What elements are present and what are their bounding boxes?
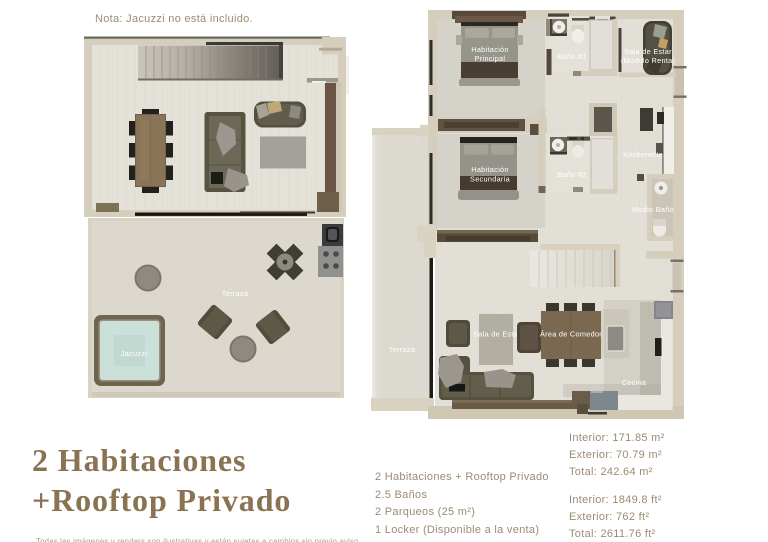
svg-text:Terraza: Terraza bbox=[389, 345, 416, 354]
svg-text:Habitación: Habitación bbox=[471, 45, 508, 54]
svg-text:Secundaria: Secundaria bbox=[470, 175, 511, 184]
svg-text:Kitchenette: Kitchenette bbox=[623, 150, 663, 159]
svg-text:(Módulo Renta): (Módulo Renta) bbox=[621, 56, 676, 65]
svg-text:Cocina: Cocina bbox=[622, 378, 647, 387]
svg-text:Habitación: Habitación bbox=[471, 165, 508, 174]
svg-text:Baño #2: Baño #2 bbox=[557, 170, 586, 179]
svg-text:Área de Comedor: Área de Comedor bbox=[540, 330, 602, 339]
svg-text:Baño #1: Baño #1 bbox=[557, 52, 586, 61]
svg-text:Principal: Principal bbox=[475, 54, 506, 63]
svg-text:Sala de Estar: Sala de Estar bbox=[624, 47, 672, 56]
svg-text:Jacuzzi: Jacuzzi bbox=[121, 349, 148, 358]
svg-text:Medio Baño: Medio Baño bbox=[632, 205, 674, 214]
svg-text:Sala de Estar: Sala de Estar bbox=[473, 330, 521, 339]
svg-text:Terraza: Terraza bbox=[222, 289, 249, 298]
